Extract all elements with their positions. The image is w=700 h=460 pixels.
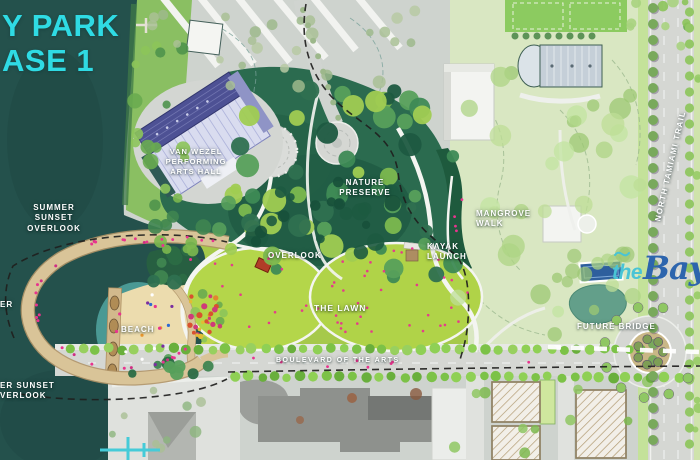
label-winter-sunset-overlook-fragment: ER SUNSET VERLOOK — [0, 381, 55, 402]
label-nature-preserve: NATURE PRESERVE — [329, 178, 401, 199]
label-beach: BEACH — [121, 325, 154, 335]
label-van-wezel-performing-arts-hall: VAN WEZEL PERFORMING ARTS HALL — [157, 147, 235, 176]
label-mangrove-walk: MANGROVE WALK — [476, 209, 531, 230]
label-kayak-launch: KAYAK LAUNCH — [427, 242, 467, 263]
logo-bay-text: Bay — [643, 249, 700, 287]
map-title: Y PARK ASE 1 — [2, 8, 119, 78]
title-line-1: Y PARK — [2, 8, 119, 43]
label-pier-fragment: ER — [0, 300, 13, 310]
label-overlook: OVERLOOK — [268, 251, 322, 261]
label-future-bridge: FUTURE BRIDGE — [577, 322, 656, 332]
label-summer-sunset-overlook: SUMMER SUNSET OVERLOOK — [13, 203, 95, 234]
title-line-2: ASE 1 — [2, 43, 119, 78]
the-bay-logo: the Bay — [612, 249, 700, 287]
label-boulevard-of-the-arts: BOULEVARD OF THE ARTS — [276, 356, 400, 365]
logo-wave-icon — [614, 249, 630, 259]
logo-the-text: the — [612, 261, 642, 285]
park-master-plan-map: Y PARK ASE 1 SUMMER SUNSET OVERLOOK VAN … — [0, 0, 700, 460]
label-the-lawn: THE LAWN — [314, 303, 366, 314]
